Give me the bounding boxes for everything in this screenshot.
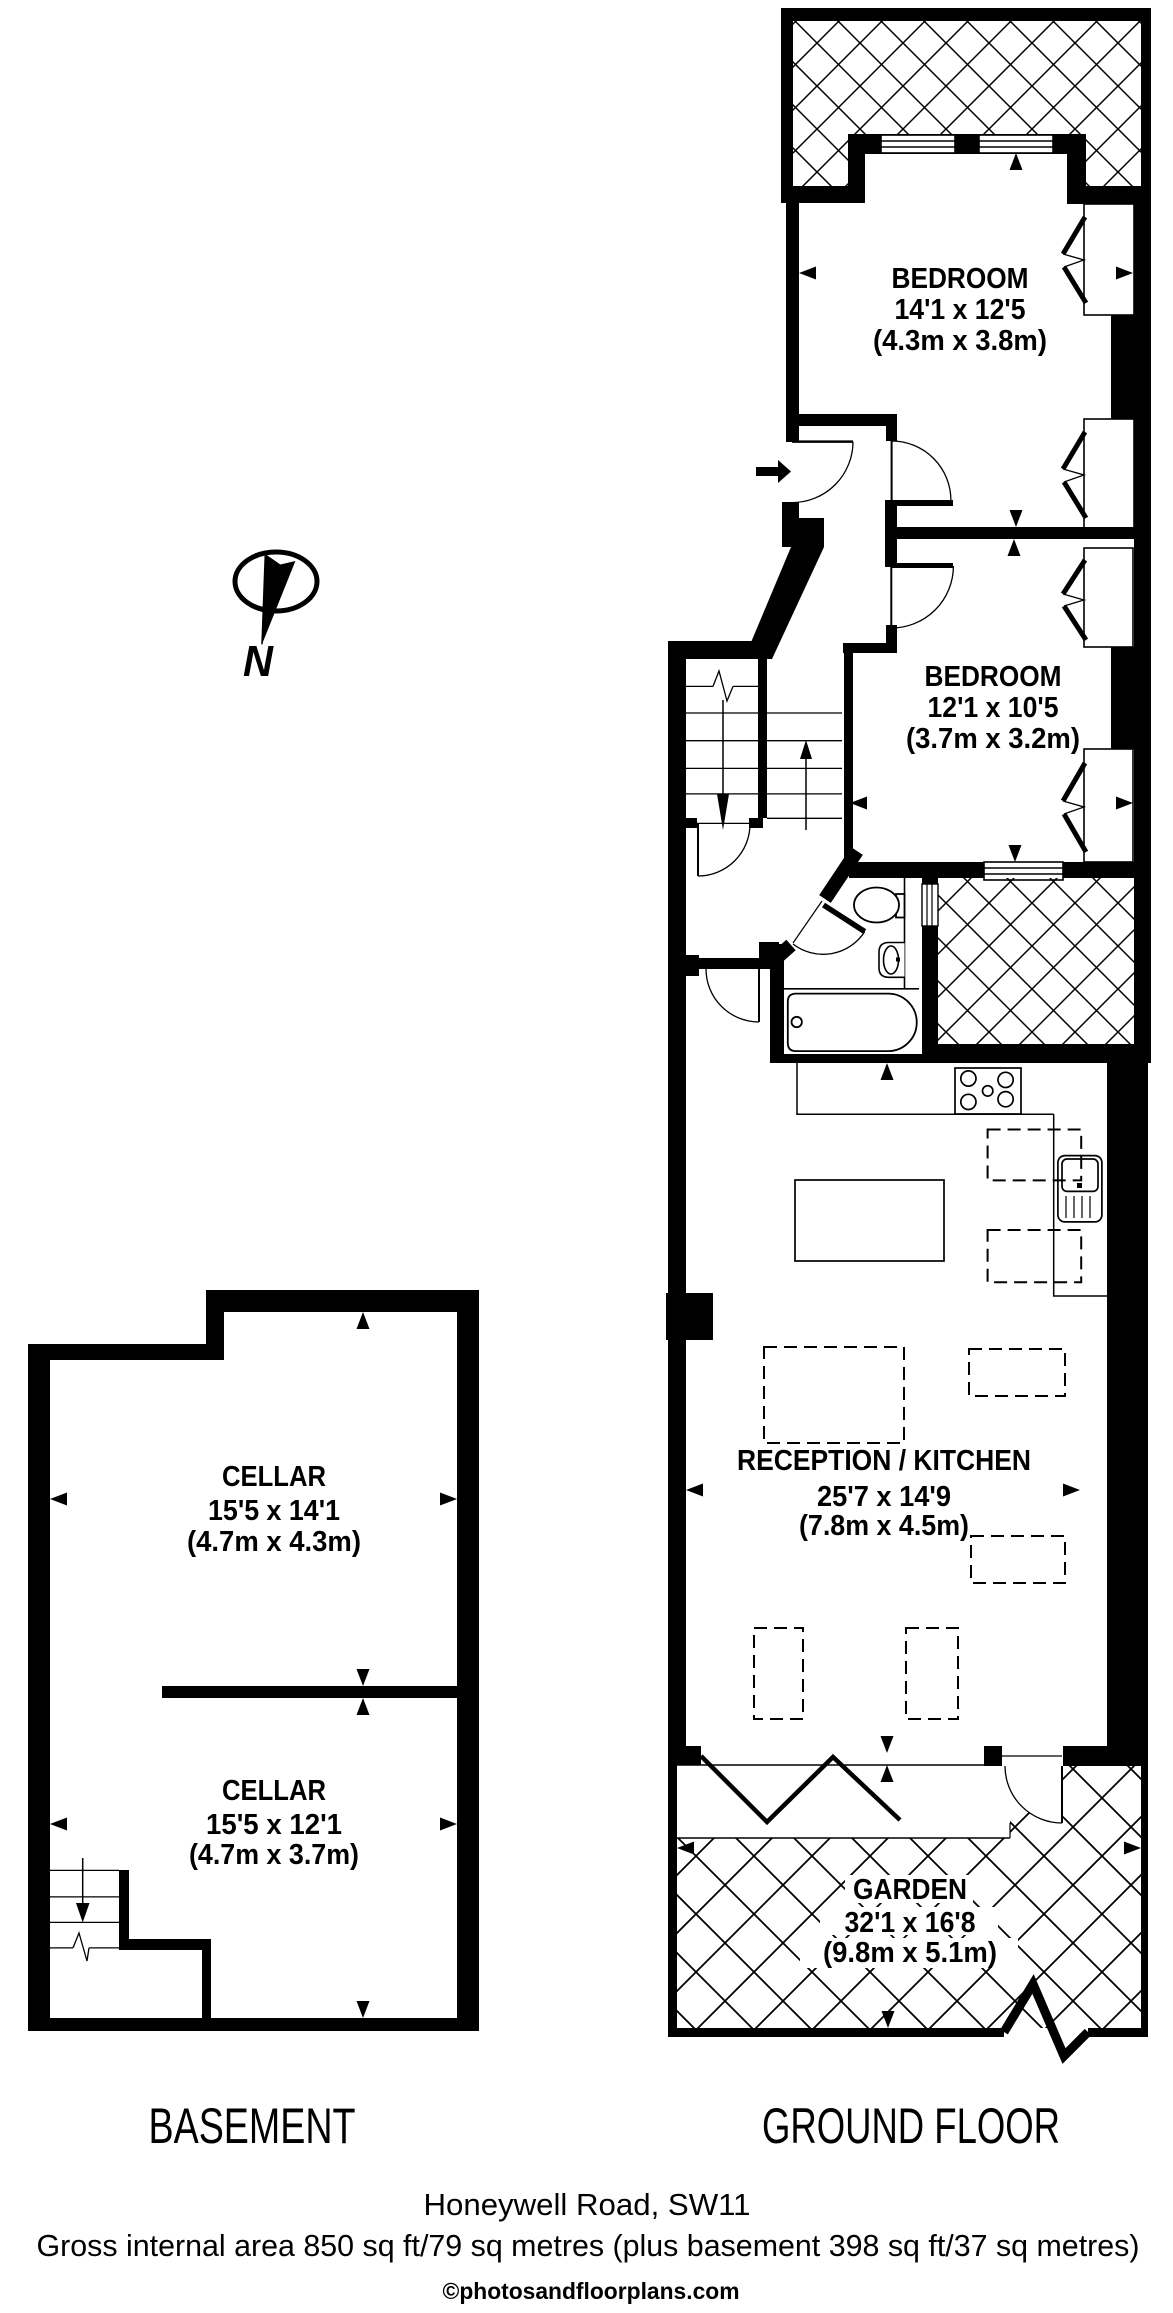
svg-text:(9.8m x 5.1m): (9.8m x 5.1m) [823,1937,997,1969]
svg-text:N: N [243,637,274,686]
svg-text:©photosandfloorplans.com: ©photosandfloorplans.com [443,2278,740,2304]
svg-text:GROUND FLOOR: GROUND FLOOR [762,2098,1060,2154]
svg-text:15'5 x 12'1: 15'5 x 12'1 [206,1809,342,1841]
svg-text:(3.7m x 3.2m): (3.7m x 3.2m) [906,723,1080,755]
svg-text:GARDEN: GARDEN [853,1874,967,1906]
svg-text:RECEPTION / KITCHEN: RECEPTION / KITCHEN [737,1445,1031,1477]
svg-text:Honeywell Road, SW11: Honeywell Road, SW11 [424,2187,751,2222]
svg-text:14'1 x 12'5: 14'1 x 12'5 [895,294,1026,326]
svg-text:12'1 x 10'5: 12'1 x 10'5 [928,692,1059,724]
svg-text:(4.7m x 4.3m): (4.7m x 4.3m) [187,1526,361,1558]
svg-text:Gross internal area 850 sq ft/: Gross internal area 850 sq ft/79 sq metr… [37,2228,1140,2263]
svg-text:(4.7m x 3.7m): (4.7m x 3.7m) [189,1839,359,1871]
svg-text:BEDROOM: BEDROOM [892,263,1029,295]
svg-text:CELLAR: CELLAR [222,1775,326,1807]
svg-text:BEDROOM: BEDROOM [925,661,1062,693]
svg-text:CELLAR: CELLAR [222,1461,326,1493]
svg-text:(4.3m x 3.8m): (4.3m x 3.8m) [873,325,1047,357]
svg-text:32'1 x 16'8: 32'1 x 16'8 [845,1907,976,1939]
svg-text:25'7 x 14'9: 25'7 x 14'9 [817,1481,951,1513]
svg-text:BASEMENT: BASEMENT [149,2098,356,2154]
svg-text:15'5 x 14'1: 15'5 x 14'1 [208,1495,340,1527]
svg-text:(7.8m x 4.5m): (7.8m x 4.5m) [799,1510,969,1542]
